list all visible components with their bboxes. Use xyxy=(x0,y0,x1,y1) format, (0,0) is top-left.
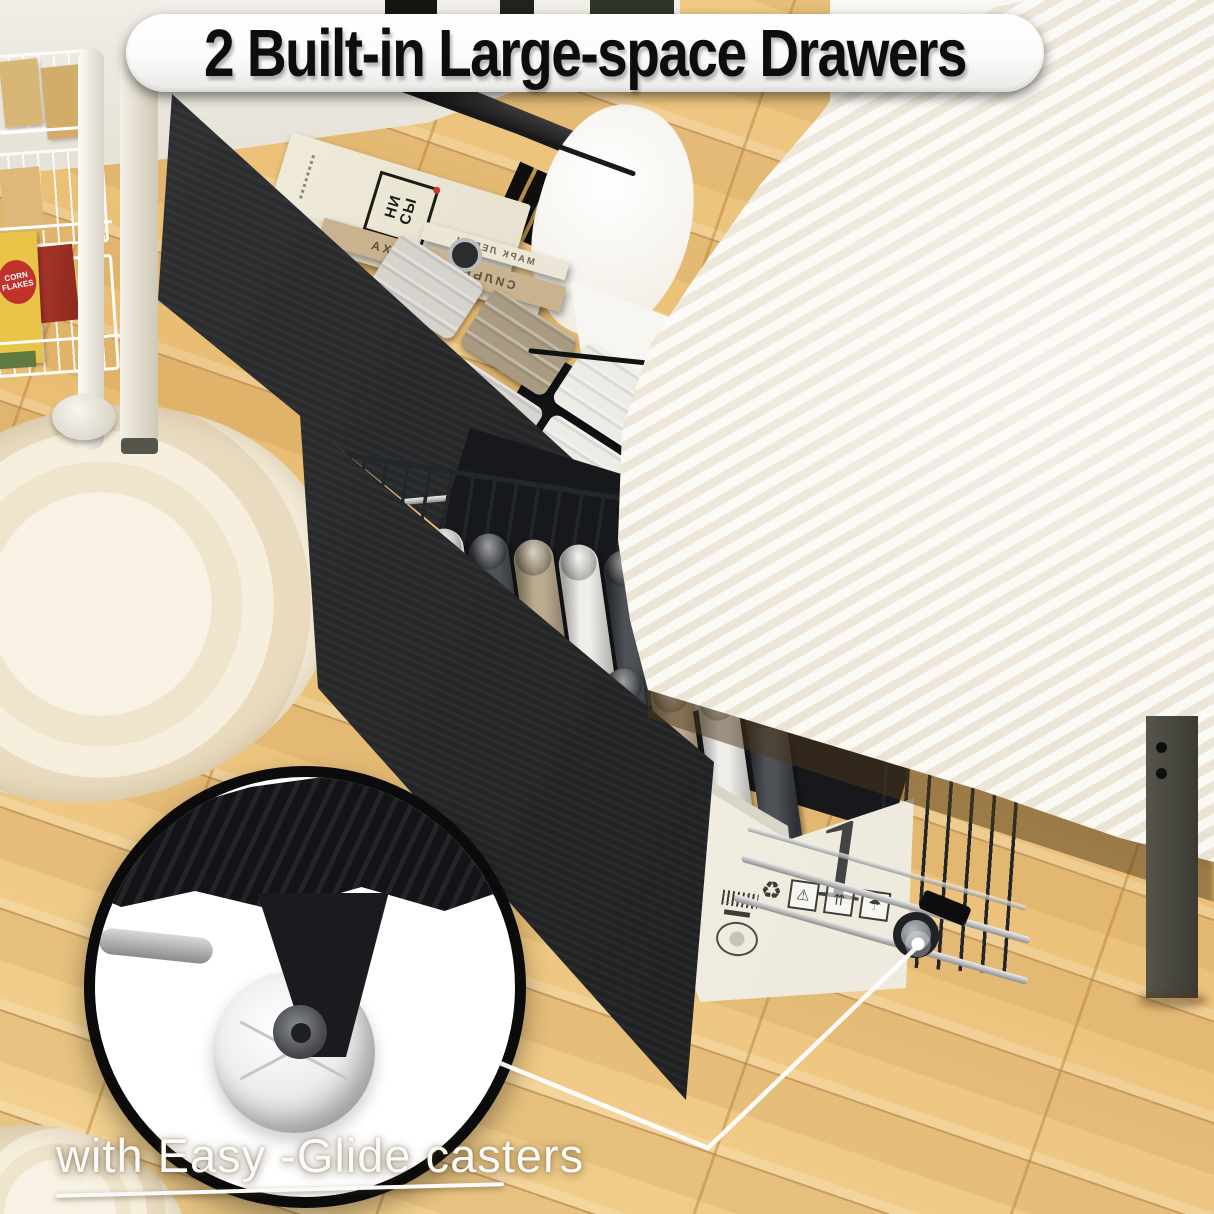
title-banner: 2 Built-in Large-space Drawers xyxy=(126,14,1044,92)
callout-line xyxy=(0,0,1214,1214)
banner-title: 2 Built-in Large-space Drawers xyxy=(204,14,966,92)
caption-text: with Easy -Glide casters xyxy=(56,1128,584,1183)
product-scene: CORN FLAKES НИ СЫ xyxy=(0,0,1214,1214)
